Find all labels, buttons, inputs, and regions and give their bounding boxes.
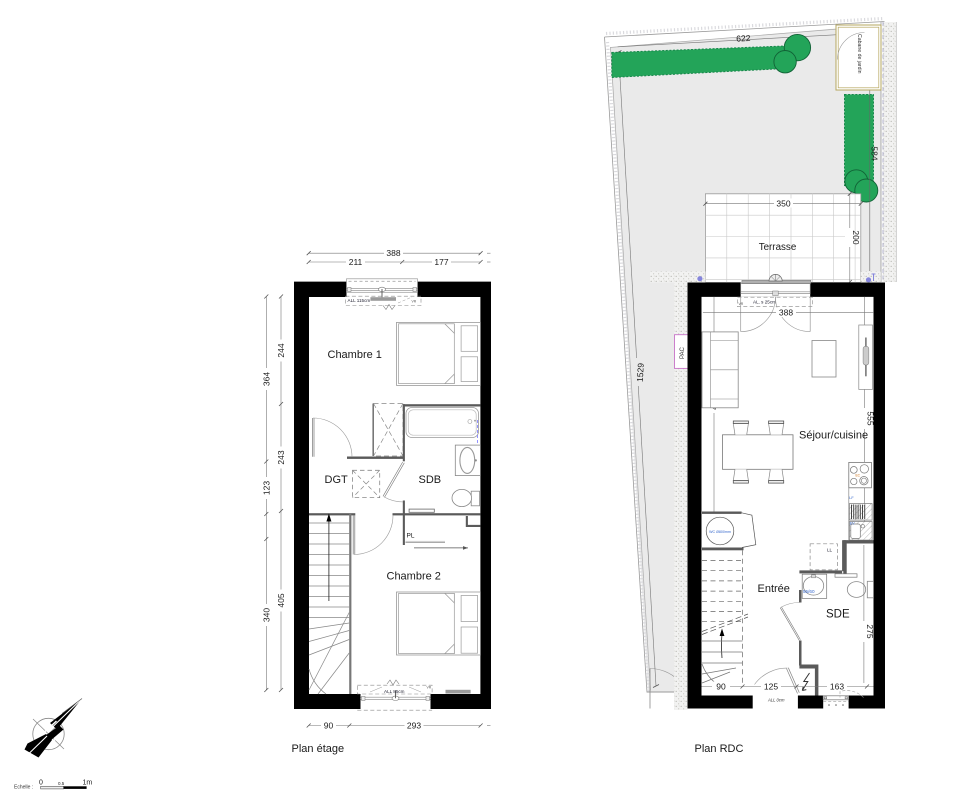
svg-text:Cabane de jardin: Cabane de jardin: [856, 34, 862, 74]
svg-text:WC Ø800mm: WC Ø800mm: [709, 530, 731, 534]
svg-text:0: 0: [39, 780, 43, 787]
svg-text:293: 293: [407, 721, 421, 731]
svg-text:90: 90: [324, 721, 334, 731]
svg-text:Echelle :: Echelle :: [14, 785, 33, 791]
svg-text:VR: VR: [412, 300, 417, 304]
svg-text:EC: EC: [856, 474, 861, 478]
svg-text:405: 405: [276, 593, 286, 607]
svg-text:ALL 85cm: ALL 85cm: [384, 689, 405, 694]
svg-text:Terrasse: Terrasse: [759, 242, 797, 253]
svg-text:1529: 1529: [635, 362, 646, 382]
svg-text:Séjour/cuisine: Séjour/cuisine: [799, 430, 868, 442]
svg-text:388: 388: [779, 308, 793, 318]
svg-text:177: 177: [434, 257, 448, 267]
svg-text:364: 364: [261, 372, 271, 386]
svg-text:Chambre 1: Chambre 1: [328, 349, 382, 361]
svg-text:SDB: SDB: [419, 474, 442, 486]
svg-text:584: 584: [870, 146, 880, 160]
svg-text:DGT: DGT: [325, 474, 349, 486]
svg-text:244: 244: [276, 343, 286, 357]
svg-text:211: 211: [349, 257, 363, 267]
svg-text:340: 340: [261, 608, 271, 622]
svg-text:123: 123: [261, 481, 271, 495]
svg-text:Entrée: Entrée: [758, 583, 790, 595]
svg-text:622: 622: [736, 33, 751, 44]
svg-text:90: 90: [716, 682, 726, 692]
svg-text:125: 125: [764, 682, 778, 692]
svg-text:0.5: 0.5: [58, 781, 65, 786]
svg-text:388: 388: [386, 248, 400, 258]
svg-text:VR: VR: [739, 302, 744, 306]
svg-text:PAC: PAC: [680, 346, 686, 359]
svg-text:LL: LL: [827, 548, 833, 553]
svg-text:ALL 0cm: ALL 0cm: [767, 698, 785, 703]
svg-text:Plan étage: Plan étage: [292, 743, 345, 755]
svg-text:EV: EV: [850, 521, 856, 525]
svg-text:SDE: SDE: [826, 609, 850, 621]
svg-text:1m: 1m: [83, 780, 93, 787]
svg-text:243: 243: [276, 450, 286, 464]
svg-text:ALL 115cm: ALL 115cm: [348, 298, 371, 303]
svg-text:163: 163: [830, 682, 844, 692]
svg-text:PL: PL: [407, 533, 415, 540]
svg-text:LF: LF: [849, 496, 854, 500]
svg-text:Plan RDC: Plan RDC: [695, 743, 744, 755]
svg-text:Chambre 2: Chambre 2: [387, 571, 441, 583]
svg-text:55/60: 55/60: [803, 589, 815, 594]
svg-text:200: 200: [851, 230, 861, 244]
svg-text:275: 275: [865, 624, 875, 638]
svg-text:350: 350: [776, 199, 790, 209]
svg-text:AL. s 25cm: AL. s 25cm: [753, 300, 776, 305]
svg-text:555: 555: [866, 411, 876, 425]
svg-text:VR: VR: [427, 685, 432, 689]
